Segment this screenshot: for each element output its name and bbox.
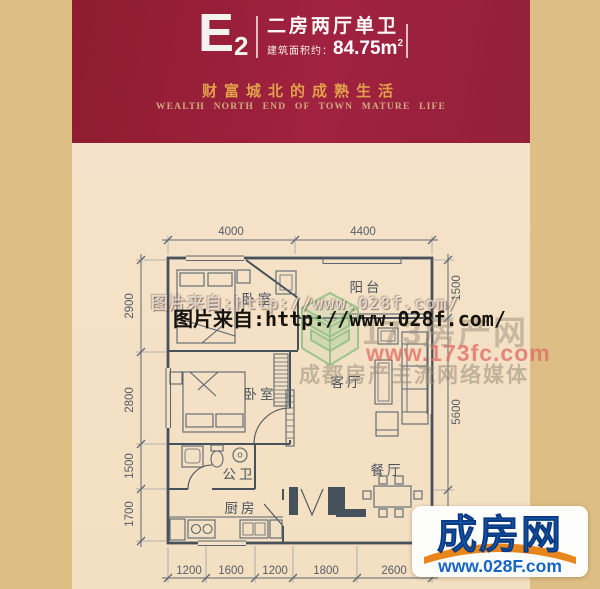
flyer-page: E2 二房两厅单卫 建筑面积约：84.75m2 财富城北的成熟生活 WEALTH…	[0, 0, 600, 589]
dim-bottom-4: 1800	[313, 565, 339, 577]
site-logo-url: www.028F.com	[437, 556, 562, 576]
dim-left-1: 2900	[124, 293, 136, 319]
dim-bottom-1: 1200	[176, 565, 202, 577]
dim-top-1: 4000	[218, 226, 244, 238]
site-logo-name: 成房网	[437, 513, 563, 557]
dim-bottom-5: 2600	[381, 565, 407, 577]
room-label-bathroom: 公卫	[223, 467, 256, 482]
dim-right-2: 5600	[451, 399, 463, 425]
washing-machine	[182, 446, 203, 467]
kitchen-counter	[168, 517, 283, 540]
watermark-photo-source-bold: 图片来自:http://www.028f.com/	[173, 303, 506, 332]
site-logo-graphic: 成房网 www.028F.com	[412, 506, 588, 577]
watermark-portal-tagline: 成都房产主流网络媒体	[299, 359, 529, 389]
armchair	[376, 412, 398, 436]
dim-top-2: 4400	[350, 226, 376, 238]
room-label-kitchen: 厨房	[225, 501, 258, 516]
dim-left-4: 1700	[124, 501, 136, 527]
site-logo-box: 成房网 www.028F.com	[412, 506, 588, 577]
washbasin	[233, 448, 247, 462]
room-label-bedroom-2: 卧室	[244, 386, 277, 402]
dim-bottom-3: 1200	[262, 565, 288, 577]
toilet	[211, 445, 223, 467]
dim-bottom-2: 1600	[218, 565, 244, 577]
dim-left-3: 1500	[124, 453, 136, 479]
bed-2	[170, 372, 245, 432]
room-label-dining-room: 餐厅	[371, 463, 404, 478]
balcony-cabinet-inner	[280, 275, 292, 290]
dim-left-2: 2800	[124, 387, 136, 413]
